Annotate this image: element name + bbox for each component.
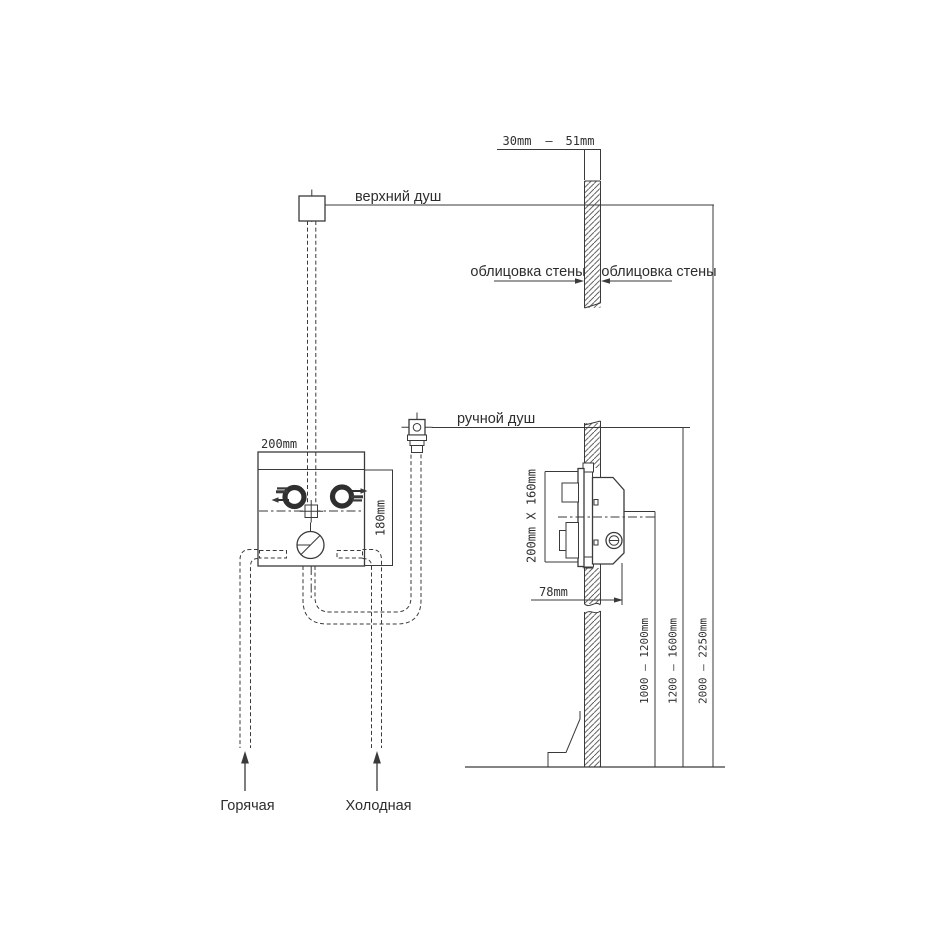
overhead-shower-outlet-icon (299, 196, 325, 221)
wall-thickness-min-label: 30mm (503, 134, 532, 148)
hand-shower-label: ручной душ (457, 411, 535, 427)
wall-thickness-max-label: 51mm (566, 134, 595, 148)
hot-pipe-wall (240, 550, 258, 749)
valve-box-height-label: 180mm (374, 500, 388, 536)
valve-stem-upper (562, 483, 579, 502)
shower-tray-profile (548, 711, 580, 767)
shower-installation-diagram: 30mm — 51mm верхний душ облицовка стены … (0, 0, 950, 950)
wall-hatch-bottom (585, 612, 601, 767)
installation-drawing-page: 30mm — 51mm верхний душ облицовка стены … (0, 0, 950, 950)
valve-height-label: 1000 — 1200mm (638, 618, 651, 704)
hose-connector (412, 446, 423, 453)
hose-connector (408, 435, 427, 441)
wall-cladding-right-label: облицовка стены (601, 264, 716, 280)
hot-pipe-wall (251, 559, 259, 749)
valve-stem-lower (566, 523, 579, 559)
wall-cladding-left-label: облицовка стены (470, 264, 585, 280)
hand-shower-group: ручной душ (402, 411, 691, 453)
wall-thickness-dimension: 30mm — 51mm (497, 134, 601, 180)
arrowhead-up-icon (373, 751, 381, 764)
wall-hatch-upper (585, 181, 601, 308)
valve-knob-lower (560, 531, 567, 551)
cold-supply-label: Холодная (345, 798, 411, 814)
overhead-shower-label: верхний душ (355, 189, 441, 205)
overhead-height-label: 2000 — 2250mm (697, 618, 710, 704)
rough-in-dimension-label: 200mm X 160mm (525, 469, 539, 563)
hot-supply-label: Горячая (220, 798, 274, 814)
valve-front-view: 200mm (258, 437, 393, 601)
valve-body-section (593, 478, 625, 565)
hand-shower-outlet-icon (409, 420, 425, 436)
wall-hatch-lower (585, 568, 601, 604)
supply-arrows: Горячая Холодная (220, 751, 411, 814)
height-dimensions: 1000 — 1200mm 1200 — 1600mm 2000 — 2250m… (624, 205, 713, 767)
body-wall-crossing (584, 468, 593, 568)
cold-pipe-wall (363, 559, 372, 749)
hand-shower-height-label: 1200 — 1600mm (667, 618, 680, 704)
box-depth-label: 78mm (539, 585, 568, 599)
arrowhead-up-icon (241, 751, 249, 764)
wall-thickness-separator: — (545, 134, 553, 148)
wall-hatch-middle (585, 423, 601, 468)
valve-box-width-label: 200mm (261, 437, 297, 451)
hose-connector (410, 441, 424, 446)
